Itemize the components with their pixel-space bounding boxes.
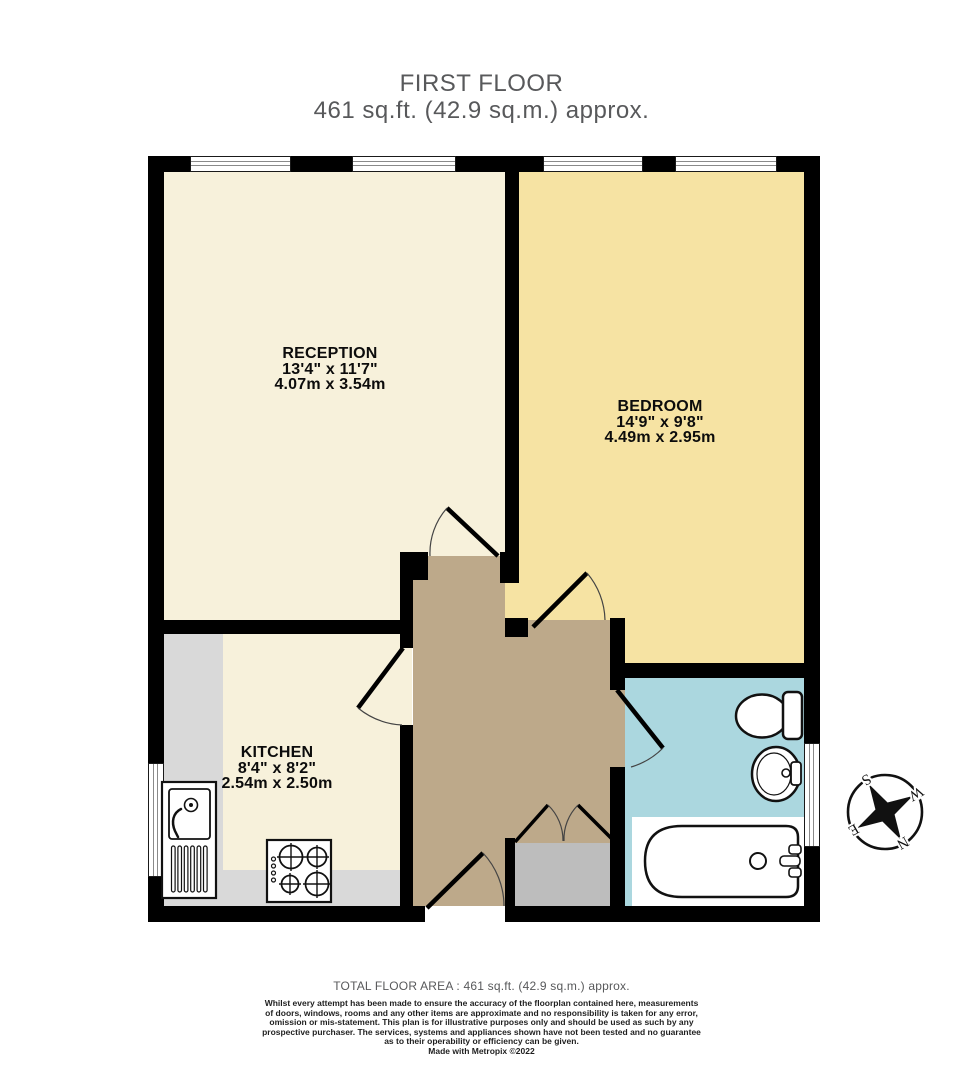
entrance-opening — [425, 906, 505, 922]
compass-south-label: S — [858, 770, 873, 788]
title-floor-line: FIRST FLOOR — [0, 70, 963, 97]
total-area-text: TOTAL FLOOR AREA : 461 sq.ft. (42.9 sq.m… — [0, 979, 963, 993]
room-label-bedroom: BEDROOM 14'9" x 9'8" 4.49m x 2.95m — [604, 399, 715, 446]
wall-outer-left-upper — [148, 156, 164, 763]
kitchen-name: KITCHEN — [221, 745, 332, 761]
compass-icon: N S E W — [827, 751, 944, 870]
kitchen-dims-metric: 2.54m x 2.50m — [221, 776, 332, 792]
wall-reception-bedroom — [505, 172, 519, 572]
wall-outer-left-lower — [148, 877, 164, 922]
wall-outer-bottom-right — [505, 906, 820, 922]
wall-outer-right-upper — [804, 156, 820, 743]
window-top-4 — [675, 156, 777, 172]
compass-west-label: W — [905, 783, 926, 804]
bedroom-dims-imperial: 14'9" x 9'8" — [604, 415, 715, 431]
room-label-reception: RECEPTION 13'4" x 11'7" 4.07m x 3.54m — [274, 346, 385, 393]
window-top-1 — [190, 156, 291, 172]
reception-dims-imperial: 13'4" x 11'7" — [274, 362, 385, 378]
window-kitchen-left — [148, 763, 164, 877]
footer: TOTAL FLOOR AREA : 461 sq.ft. (42.9 sq.m… — [0, 979, 963, 1057]
wall-outer-bottom-left — [148, 906, 425, 922]
title-area-line: 461 sq.ft. (42.9 sq.m.) approx. — [0, 97, 963, 124]
bedroom-dims-metric: 4.49m x 2.95m — [604, 430, 715, 446]
wall-outer-right-lower — [804, 847, 820, 922]
window-bathroom-right — [804, 743, 820, 847]
reception-dims-metric: 4.07m x 3.54m — [274, 377, 385, 393]
window-top-2 — [352, 156, 456, 172]
reception-name: RECEPTION — [274, 346, 385, 362]
wall-bedroom-bathroom — [610, 663, 820, 678]
bedroom-door-threshold — [528, 620, 610, 634]
wall-reception-kitchen — [148, 620, 412, 634]
window-top-3 — [543, 156, 643, 172]
wall-hall-left-upper — [400, 568, 413, 648]
room-label-kitchen: KITCHEN 8'4" x 8'2" 2.54m x 2.50m — [221, 745, 332, 792]
floorplan-page: FIRST FLOOR 461 sq.ft. (42.9 sq.m.) appr… — [0, 0, 963, 1080]
wall-hall-right-upper — [610, 618, 625, 690]
compass-east-label: E — [845, 820, 861, 838]
bath-alcove — [632, 817, 804, 906]
wall-hall-left-lower — [400, 725, 413, 906]
wall-stub-divider-bottom — [500, 552, 519, 583]
wall-hall-right-lower — [610, 767, 625, 906]
bathroom-door-threshold — [610, 690, 625, 767]
compass-north-label: N — [894, 833, 912, 852]
wall-stub-bedroom-door — [505, 618, 528, 637]
kitchen-dims-imperial: 8'4" x 8'2" — [221, 761, 332, 777]
kitchen-counter-bottom — [164, 870, 400, 906]
disclaimer-text: Whilst every attempt has been made to en… — [0, 999, 963, 1057]
kitchen-counter-left — [164, 634, 223, 906]
bedroom-name: BEDROOM — [604, 399, 715, 415]
built-in-cupboard — [515, 843, 610, 906]
credit-line: Made with Metropix ©2022 — [0, 1047, 963, 1057]
room-reception — [164, 172, 505, 620]
floorplan-title: FIRST FLOOR 461 sq.ft. (42.9 sq.m.) appr… — [0, 70, 963, 124]
wall-cupboard-left — [505, 838, 515, 906]
